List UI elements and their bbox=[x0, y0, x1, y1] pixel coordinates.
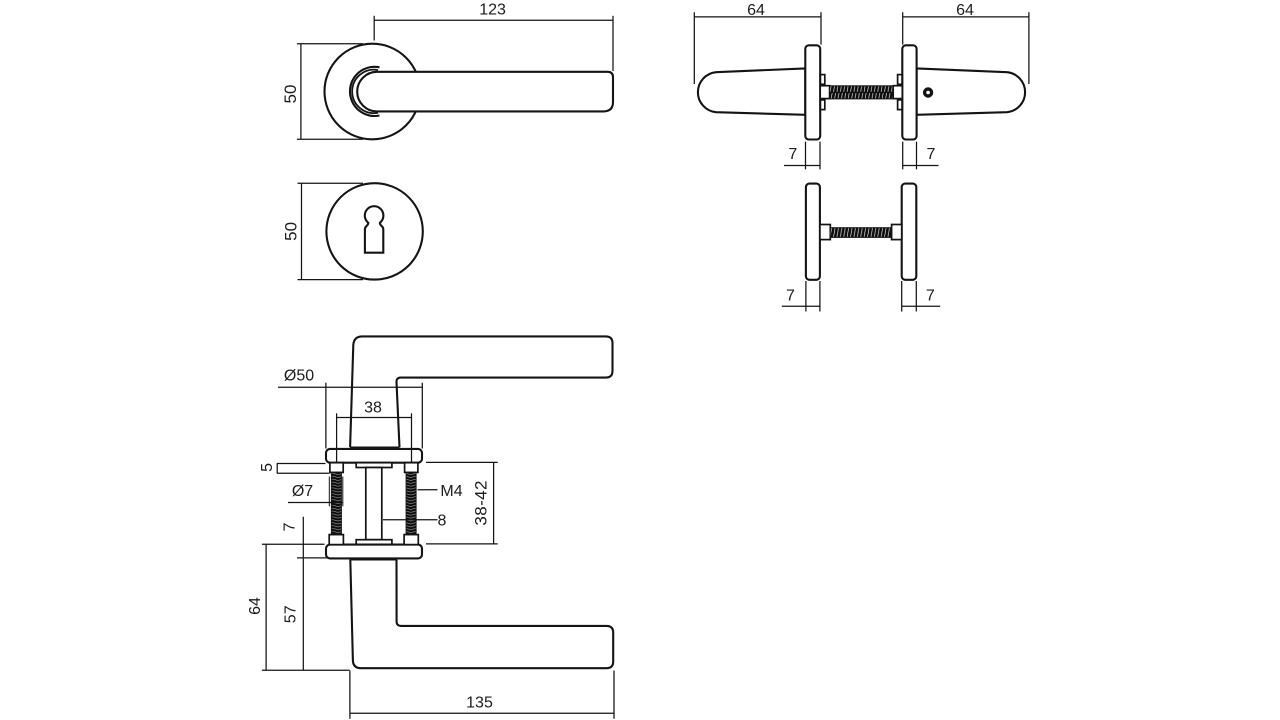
svg-text:5: 5 bbox=[259, 463, 276, 472]
svg-text:7: 7 bbox=[926, 146, 935, 163]
svg-text:135: 135 bbox=[466, 695, 493, 712]
svg-text:7: 7 bbox=[788, 146, 797, 163]
svg-text:7: 7 bbox=[786, 287, 795, 304]
svg-text:7: 7 bbox=[926, 287, 935, 304]
svg-text:50: 50 bbox=[281, 85, 300, 104]
svg-text:38: 38 bbox=[364, 399, 382, 416]
svg-text:38-42: 38-42 bbox=[472, 480, 491, 525]
svg-text:57: 57 bbox=[283, 605, 300, 623]
svg-text:8: 8 bbox=[437, 513, 446, 530]
svg-text:Ø50: Ø50 bbox=[284, 367, 314, 384]
svg-text:M4: M4 bbox=[440, 483, 462, 500]
svg-text:123: 123 bbox=[479, 1, 506, 18]
svg-text:64: 64 bbox=[747, 2, 765, 19]
svg-text:7: 7 bbox=[281, 522, 298, 531]
svg-text:Ø7: Ø7 bbox=[292, 483, 313, 500]
svg-text:64: 64 bbox=[247, 597, 264, 615]
svg-text:50: 50 bbox=[282, 222, 301, 241]
svg-text:64: 64 bbox=[956, 2, 974, 19]
